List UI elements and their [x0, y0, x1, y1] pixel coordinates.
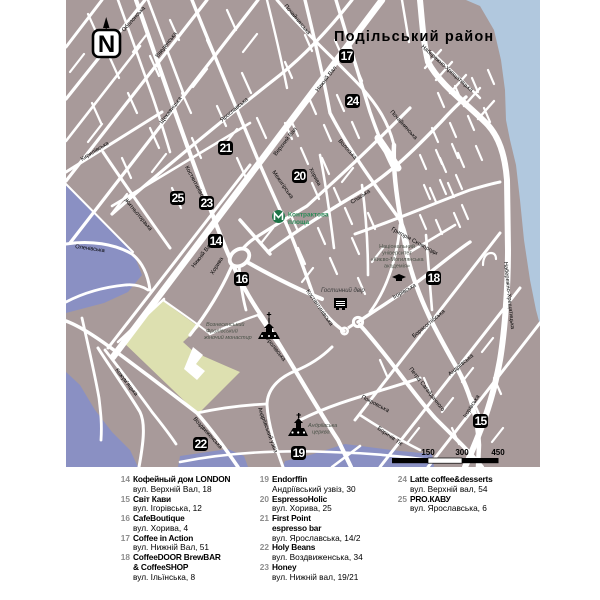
svg-text:150: 150	[421, 448, 435, 457]
svg-text:жіночий монастир: жіночий монастир	[203, 334, 252, 341]
svg-text:Контрактова: Контрактова	[288, 212, 329, 219]
svg-text:Вознесенський: Вознесенський	[206, 321, 244, 328]
svg-text:церква: церква	[312, 430, 330, 436]
svg-text:Фролівський: Фролівський	[206, 328, 238, 335]
svg-text:площа: площа	[288, 219, 310, 226]
svg-text:університет: університет	[382, 251, 412, 257]
svg-text:«Києво-Могилянська: «Києво-Могилянська	[370, 257, 424, 263]
svg-text:450: 450	[491, 448, 505, 457]
svg-text:Національний: Національний	[379, 243, 415, 250]
svg-text:300: 300	[455, 448, 469, 457]
svg-text:академія»: академія»	[384, 264, 410, 270]
svg-text:N: N	[98, 31, 115, 58]
svg-text:Андріївська: Андріївська	[307, 423, 337, 429]
svg-text:Подільський район: Подільський район	[334, 29, 494, 45]
svg-text:Гостинний двір: Гостинний двір	[321, 287, 365, 294]
